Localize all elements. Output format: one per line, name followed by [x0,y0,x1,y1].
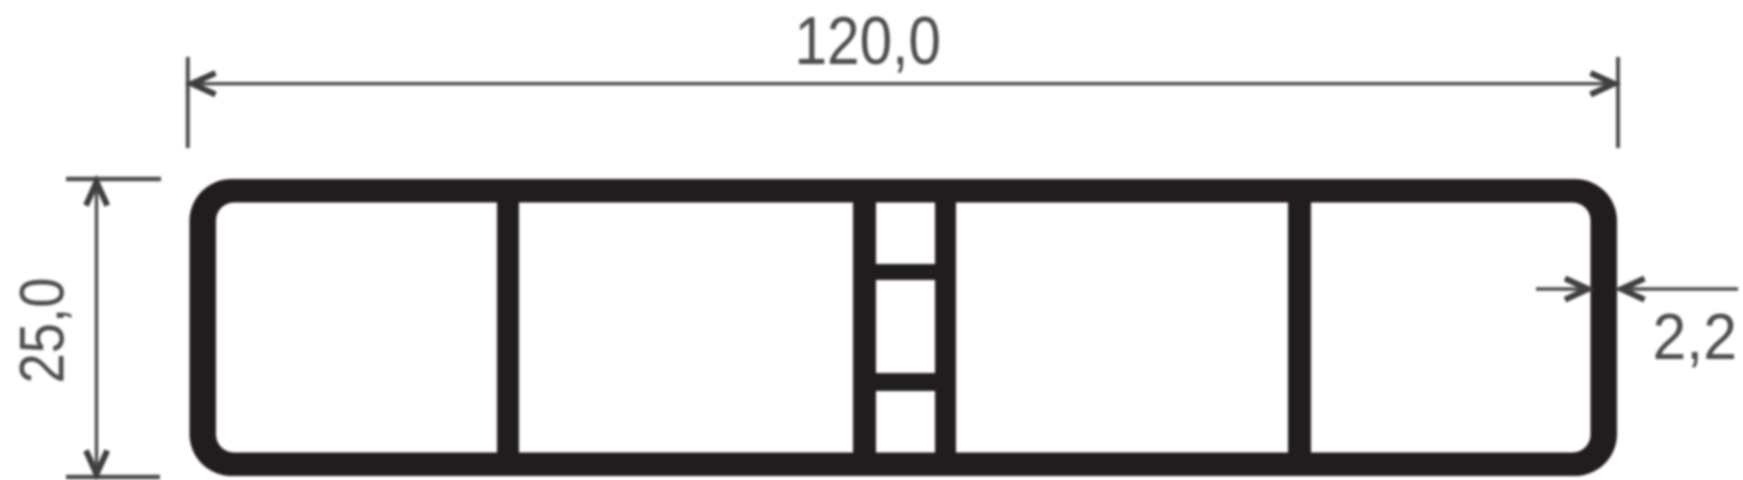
svg-text:120,0: 120,0 [795,3,942,79]
svg-text:25,0: 25,0 [8,278,78,384]
svg-text:2,2: 2,2 [1653,300,1738,373]
